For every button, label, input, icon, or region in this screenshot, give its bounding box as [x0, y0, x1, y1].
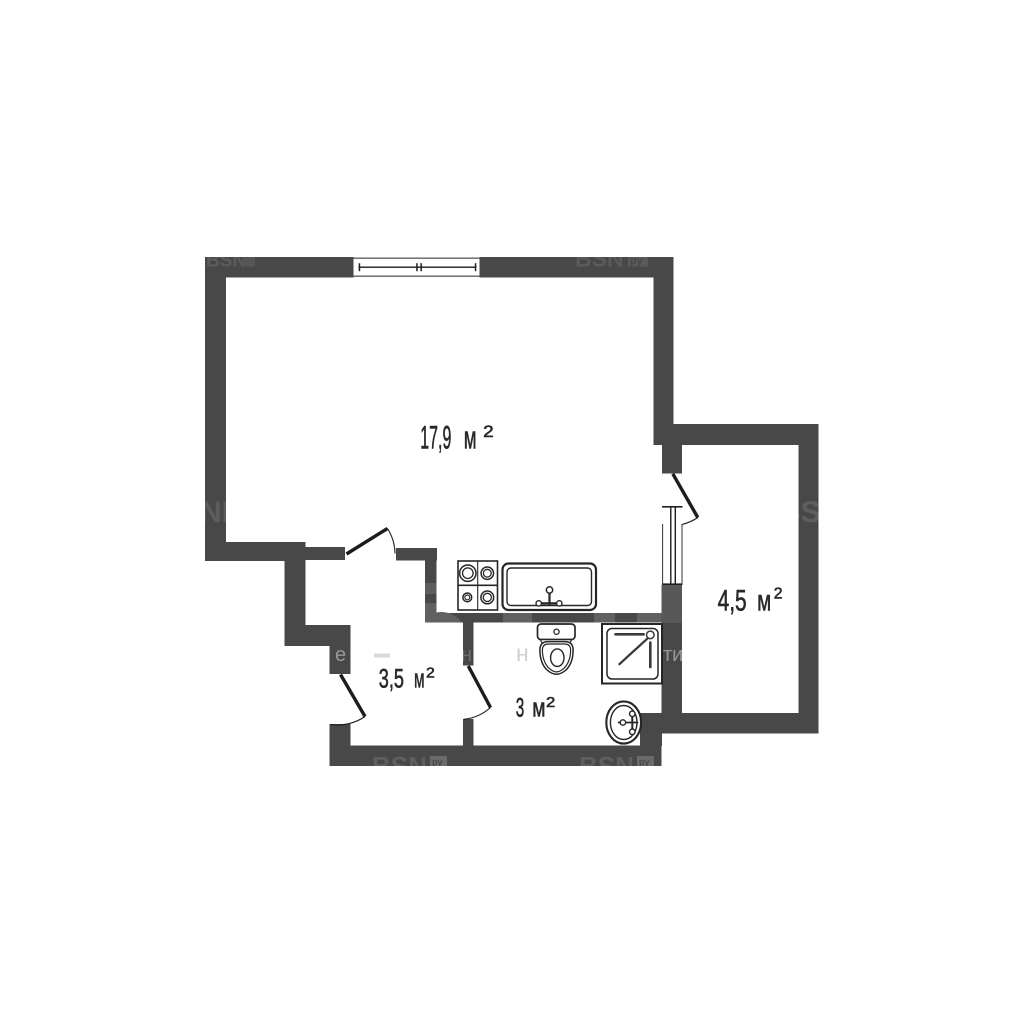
- svg-text:3,5: 3,5: [379, 664, 404, 694]
- svg-text:4,5: 4,5: [718, 585, 747, 618]
- svg-text:м: м: [414, 664, 425, 694]
- svg-text:м: м: [757, 585, 771, 618]
- svg-text:3: 3: [516, 693, 525, 723]
- svg-text:2: 2: [546, 694, 555, 711]
- svg-text:ру: ру: [639, 757, 649, 767]
- svg-text:м: м: [532, 693, 545, 723]
- svg-text:н: н: [516, 640, 529, 666]
- svg-text:ру: ру: [432, 757, 442, 767]
- svg-text:2: 2: [426, 665, 435, 682]
- svg-text:м: м: [464, 420, 477, 456]
- svg-text:ти: ти: [663, 644, 683, 666]
- svg-text:е: е: [335, 644, 346, 666]
- svg-text:2: 2: [483, 422, 494, 441]
- svg-text:2: 2: [774, 586, 783, 603]
- svg-text:17,9: 17,9: [420, 420, 451, 456]
